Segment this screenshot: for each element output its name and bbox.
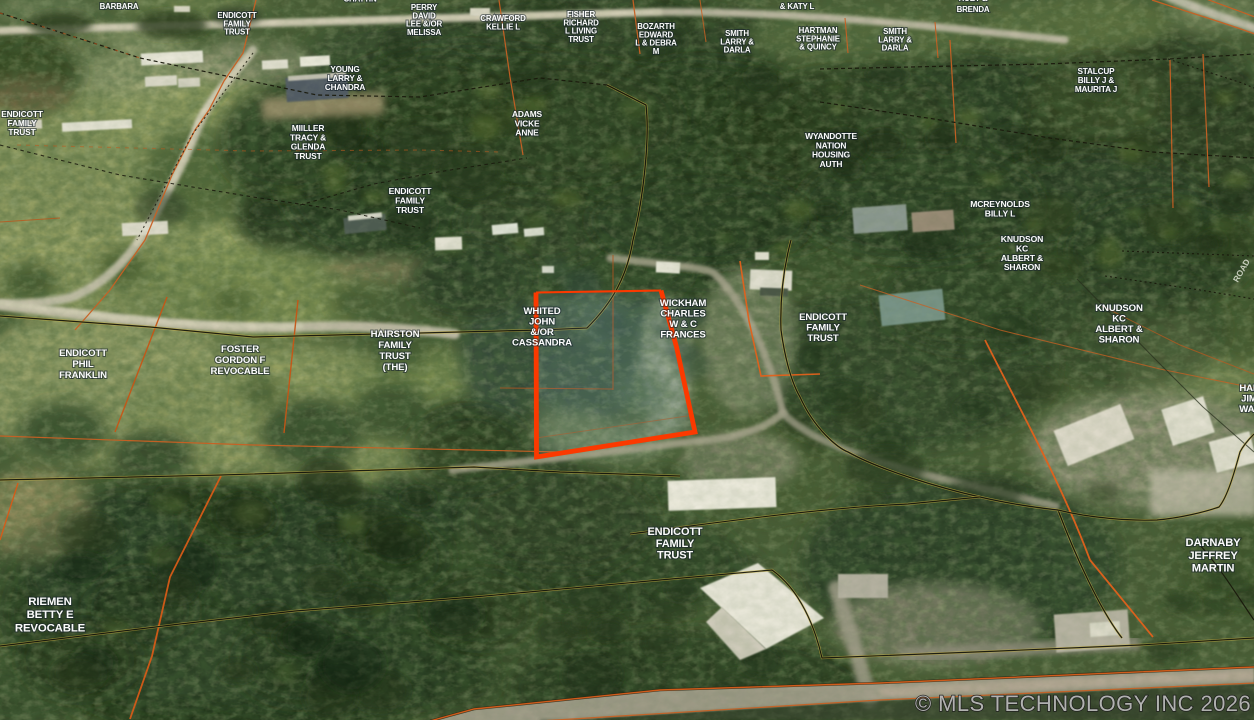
svg-text:KNUDSONKCALBERT &SHARON: KNUDSONKCALBERT &SHARON — [1001, 234, 1043, 272]
svg-text:MIILLERTRACY &GLENDATRUST: MIILLERTRACY &GLENDATRUST — [290, 123, 326, 161]
svg-text:BRENDA: BRENDA — [957, 5, 990, 14]
svg-text:CHATTIN: CHATTIN — [344, 0, 377, 4]
svg-text:HARDYJIMMYWAYNE: HARDYJIMMYWAYNE — [1239, 383, 1254, 415]
svg-text:DARNABYJEFFREYMARTIN: DARNABYJEFFREYMARTIN — [1186, 537, 1242, 575]
svg-text:FISHERRICHARDL LIVINGTRUST: FISHERRICHARDL LIVINGTRUST — [563, 10, 599, 44]
svg-text:PERRYDAVIDLEE &/ORMELISSA: PERRYDAVIDLEE &/ORMELISSA — [406, 3, 443, 37]
svg-text:CRAWFORDKELLIE L: CRAWFORDKELLIE L — [480, 14, 526, 31]
svg-text:BARBARA: BARBARA — [100, 2, 139, 11]
svg-text:YOUNGLARRY &CHANDRA: YOUNGLARRY &CHANDRA — [325, 65, 366, 92]
svg-text:WICKHAMCHARLESW & CFRANCES: WICKHAMCHARLESW & CFRANCES — [660, 298, 707, 341]
svg-text:HARTMANSTEPHANIE& QUINCY: HARTMANSTEPHANIE& QUINCY — [796, 26, 840, 52]
svg-text:KNUDSONKCALBERT &SHARON: KNUDSONKCALBERT &SHARON — [1095, 303, 1143, 346]
svg-text:© MLS TECHNOLOGY INC 2026: © MLS TECHNOLOGY INC 2026 — [915, 691, 1251, 716]
svg-text:STALCUPBILLY J &MAURITA J: STALCUPBILLY J &MAURITA J — [1075, 67, 1117, 94]
svg-text:HUEY &: HUEY & — [959, 0, 988, 3]
svg-text:ADAMSVICKEANNE: ADAMSVICKEANNE — [512, 109, 543, 138]
svg-text:& KATY L: & KATY L — [780, 2, 815, 11]
